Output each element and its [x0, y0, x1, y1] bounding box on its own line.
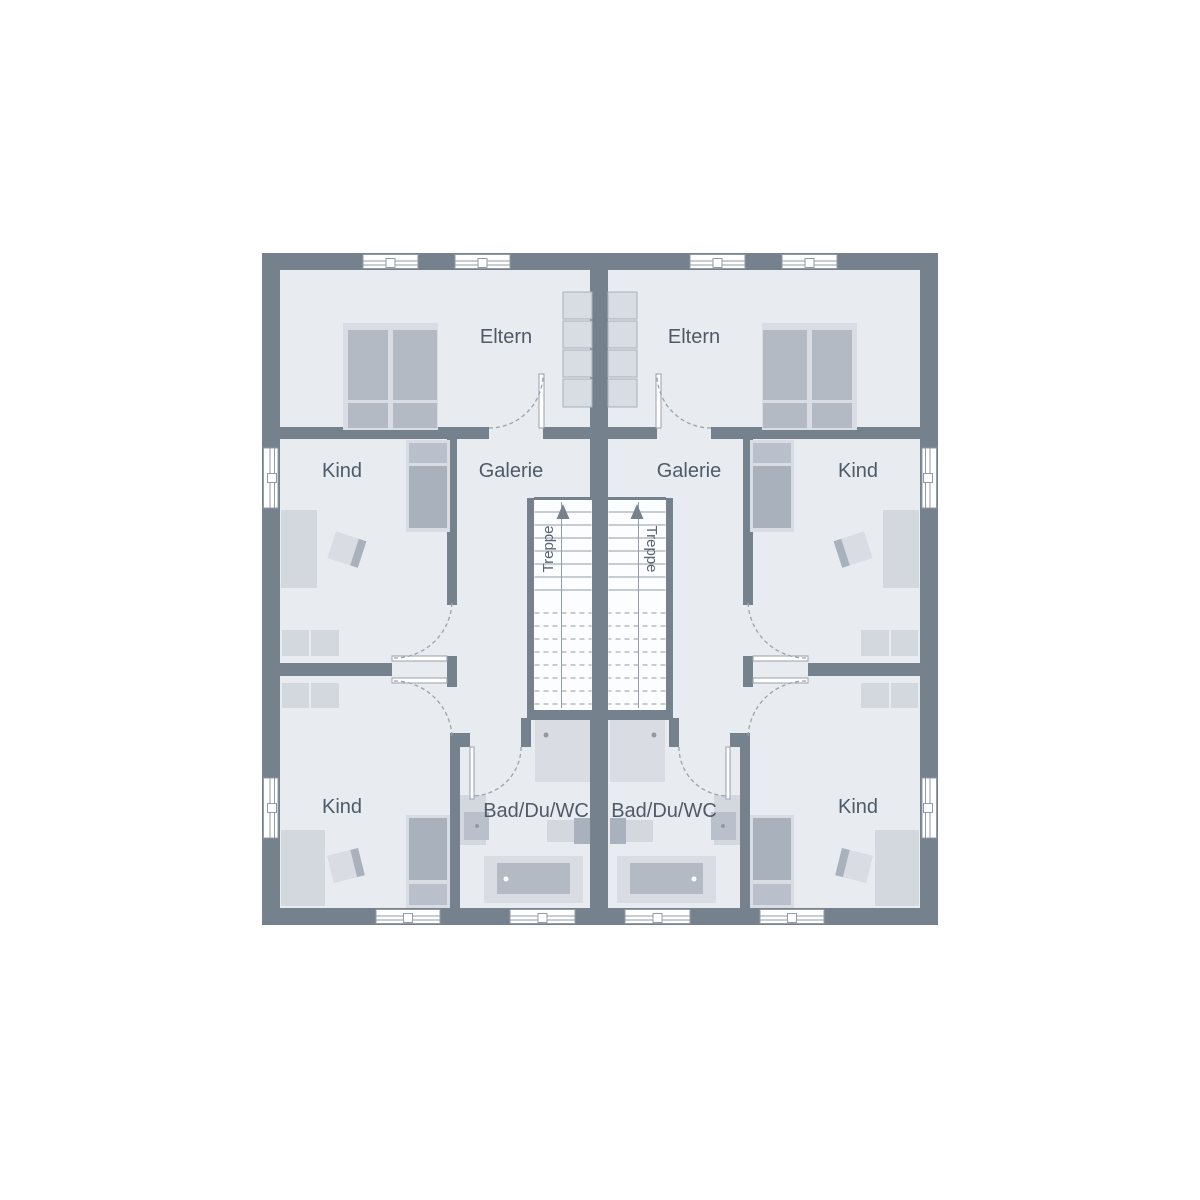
- desk: [282, 630, 309, 656]
- wall-kind-bath: [450, 733, 460, 908]
- window: [264, 448, 279, 508]
- wc: [547, 820, 574, 842]
- eltern-wardrobe: [563, 292, 592, 407]
- room-label-eltern-right: Eltern: [668, 326, 720, 348]
- wall-bath-stub: [521, 718, 531, 747]
- shower: [535, 720, 590, 782]
- desk: [311, 683, 339, 708]
- desk: [311, 630, 339, 656]
- door-leaf-kind-upper: [392, 656, 447, 661]
- wardrobe-body: [409, 466, 447, 528]
- door-leaf-eltern: [539, 374, 544, 428]
- room-label-eltern-left: Eltern: [480, 326, 532, 348]
- wall-stairwell-top-edge: [534, 497, 592, 500]
- bed-foot: [393, 403, 437, 428]
- bed-foot: [348, 403, 388, 428]
- door-leaf-kind-lower: [392, 678, 447, 683]
- wall-eltern-south-east: [543, 427, 592, 439]
- room-label-kind-lower-left: Kind: [322, 796, 362, 818]
- door-leaf-bath: [470, 747, 474, 799]
- room-label-bad-left: Bad/Du/WC: [483, 800, 589, 822]
- bed: [281, 510, 317, 588]
- basin-drain: [475, 824, 479, 828]
- window: [376, 910, 440, 924]
- room-label-kind-lower-right: Kind: [838, 796, 878, 818]
- wardrobe-bottom: [409, 884, 447, 905]
- room-label-bad-right: Bad/Du/WC: [611, 800, 717, 822]
- wardrobe-top: [409, 443, 447, 463]
- wall-stairwell-bottom: [527, 710, 592, 720]
- bed-mattress: [348, 330, 388, 400]
- wall-kind-kind: [280, 663, 392, 676]
- bed: [281, 830, 325, 906]
- window: [363, 255, 418, 269]
- floorplan-page: Eltern Eltern Kind Kind Galerie Galerie …: [0, 0, 1200, 1200]
- room-label-kind-upper-right: Kind: [838, 460, 878, 482]
- room-label-treppe-left: Treppe: [540, 526, 557, 573]
- window: [455, 255, 510, 269]
- bed-mattress: [393, 330, 437, 400]
- wall-pier-corridor: [447, 656, 457, 687]
- bathtub-drain: [504, 877, 509, 882]
- window: [264, 778, 279, 838]
- window: [510, 910, 575, 924]
- desk: [282, 683, 309, 708]
- shower-drain: [544, 733, 549, 738]
- room-label-kind-upper-left: Kind: [322, 460, 362, 482]
- wall-stairwell-side: [527, 498, 534, 720]
- room-label-treppe-right: Treppe: [643, 526, 660, 573]
- wardrobe-body: [409, 818, 447, 880]
- room-label-galerie-left: Galerie: [479, 460, 543, 482]
- floorplan-svg: Eltern Eltern Kind Kind Galerie Galerie …: [0, 0, 1200, 1200]
- room-label-galerie-right: Galerie: [657, 460, 721, 482]
- party-wall: [590, 253, 608, 925]
